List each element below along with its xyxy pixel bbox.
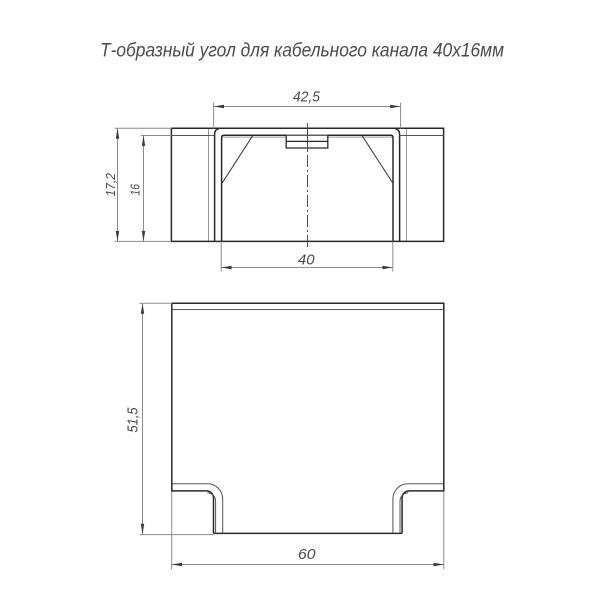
svg-text:17,2: 17,2 [103, 172, 118, 196]
svg-text:40: 40 [298, 252, 315, 269]
svg-text:60: 60 [298, 546, 316, 563]
svg-text:51,5: 51,5 [124, 407, 141, 433]
svg-text:42,5: 42,5 [293, 89, 321, 106]
svg-text:16: 16 [128, 183, 143, 195]
svg-text:Т-образный угол для кабельного: Т-образный угол для кабельного канала 40… [100, 41, 504, 62]
